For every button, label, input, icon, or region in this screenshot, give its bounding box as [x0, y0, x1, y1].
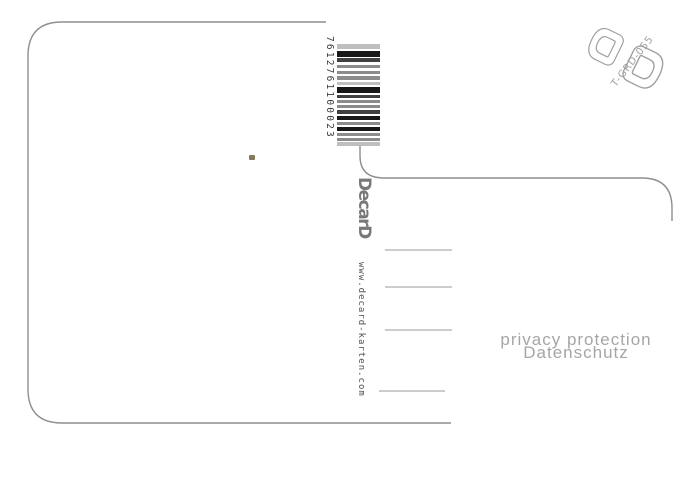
scan-speck — [249, 155, 255, 160]
postcard-scan: 7612761100023 DecarD www.decard-karten.c… — [0, 0, 700, 490]
website-url: www.decard-karten.com — [356, 262, 366, 397]
barcode-number: 7612761100023 — [324, 36, 335, 139]
stamp-logo: T-GRD-055 — [575, 5, 685, 115]
card-border — [28, 22, 451, 423]
address-panel-border — [360, 144, 672, 221]
privacy-watermark: privacy protection Datenschutz — [458, 333, 694, 359]
barcode-bars-icon — [337, 44, 380, 146]
brand-logo: DecarD — [354, 177, 374, 238]
d-glyph-left-icon — [585, 25, 626, 67]
privacy-text-de: Datenschutz — [458, 346, 694, 359]
